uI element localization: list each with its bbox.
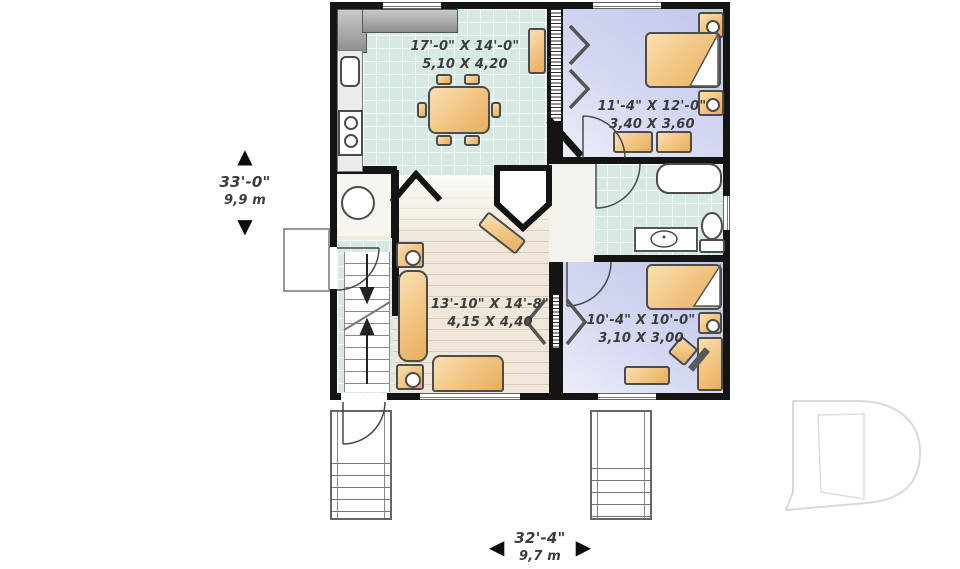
sink-icon [651, 231, 677, 247]
burner-icon [345, 117, 357, 129]
label-kitchen-dining: 17'-0" X 14'-0" 5,10 X 4,20 [390, 38, 540, 73]
logo-inner-cut [818, 414, 864, 499]
room-size-imperial: 13'-10" X 14'-8" [415, 296, 565, 314]
door-bathroom [596, 164, 640, 208]
arrow-head-down-icon [361, 288, 373, 302]
door-porch [337, 248, 379, 290]
toilet-tank [700, 240, 724, 252]
room-size-metric: 3,10 X 3,00 [574, 330, 708, 348]
burner-icon [345, 135, 357, 147]
floor-plan-canvas: 17'-0" X 14'-0" 5,10 X 4,20 11'-4" X 12'… [0, 0, 960, 569]
label-living-room: 13'-10" X 14'-8" 4,15 X 4,40 [415, 296, 565, 331]
depth-imperial: 33'-0" [205, 172, 285, 192]
water-heater [342, 187, 374, 219]
angled-wall [392, 174, 440, 202]
door-bedroom-lower [567, 262, 611, 306]
arrow-left-icon: ◀ [489, 537, 504, 557]
room-size-imperial: 10'-4" X 10'-0" [574, 312, 708, 330]
door-front [343, 402, 385, 444]
diagonal-wall [549, 120, 581, 156]
arrow-head-up-icon [361, 320, 373, 334]
width-metric: 9,7 m [514, 548, 565, 566]
room-size-imperial: 17'-0" X 14'-0" [390, 38, 540, 56]
width-text: 32'-4" 9,7 m [514, 528, 565, 566]
width-dimension: ◀ 32'-4" 9,7 m ▶ [440, 528, 640, 566]
label-bedroom-lower: 10'-4" X 10'-0" 3,10 X 3,00 [574, 312, 708, 347]
bifold-door-icon [570, 26, 588, 64]
bed-fold [690, 34, 718, 86]
builder-logo-icon [768, 392, 948, 532]
toilet-bowl [702, 213, 722, 239]
faucet-dot [663, 236, 666, 239]
depth-dimension: ▲ 33'-0" 9,9 m ▼ [205, 146, 285, 236]
arrow-up-icon: ▲ [205, 146, 285, 166]
arrow-down-icon: ▼ [205, 216, 285, 236]
room-size-imperial: 11'-4" X 12'-0" [585, 98, 719, 116]
room-size-metric: 3,40 X 3,60 [585, 116, 719, 134]
width-imperial: 32'-4" [514, 528, 565, 548]
arrow-right-icon: ▶ [576, 537, 591, 557]
label-bedroom-upper: 11'-4" X 12'-0" 3,40 X 3,60 [585, 98, 719, 133]
room-size-metric: 5,10 X 4,20 [390, 56, 540, 74]
room-size-metric: 4,15 X 4,40 [415, 314, 565, 332]
bed-fold [694, 266, 720, 306]
foyer-closet [497, 168, 549, 228]
depth-metric: 9,9 m [205, 192, 285, 210]
